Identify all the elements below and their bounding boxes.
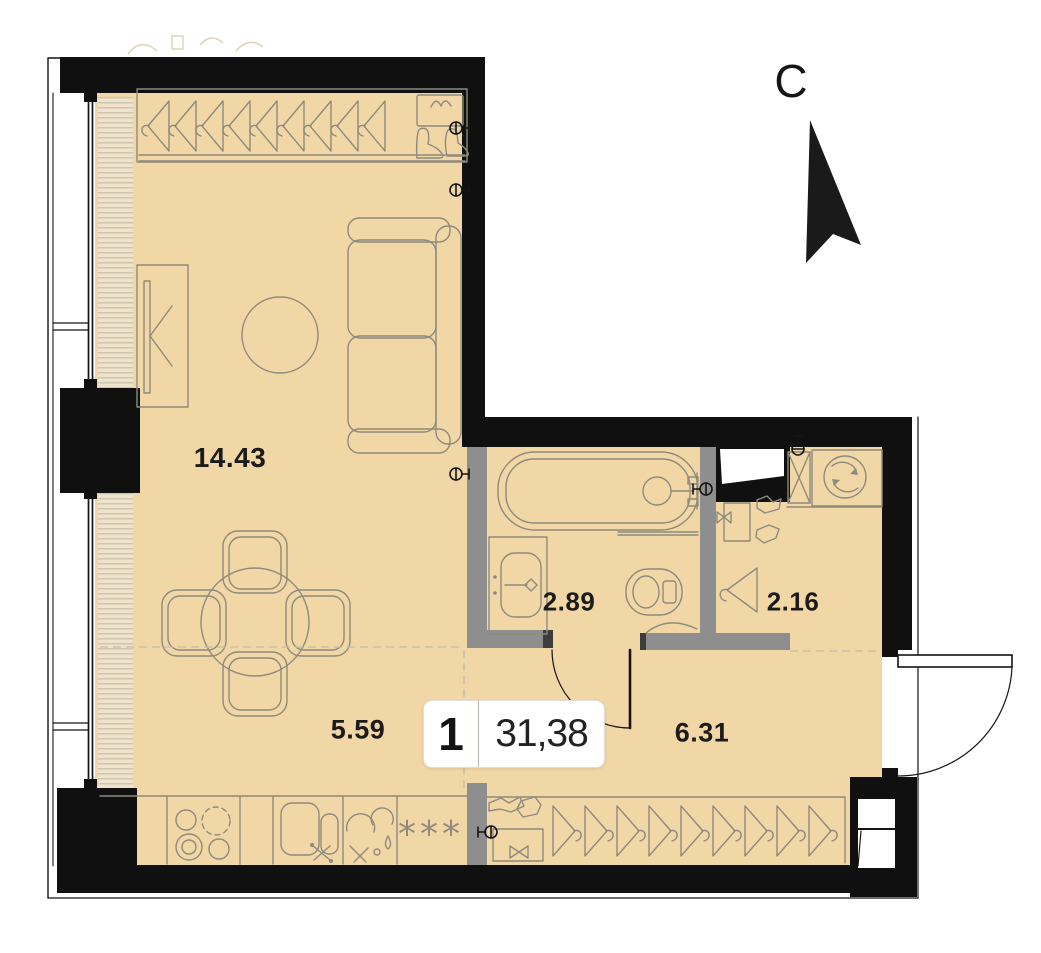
outlet-icon bbox=[450, 468, 469, 480]
area-label-storage: 2.16 bbox=[767, 587, 820, 618]
sink-vanity bbox=[489, 537, 547, 634]
unit-total-area: 31,38 bbox=[479, 701, 604, 767]
dining-table bbox=[162, 531, 350, 716]
shower-door-arc bbox=[646, 623, 697, 633]
closet-bottom bbox=[487, 797, 845, 863]
outlet-icon bbox=[693, 483, 712, 495]
compass-arrow-icon bbox=[806, 120, 861, 263]
area-label-kitchen: 5.59 bbox=[331, 715, 386, 746]
unit-number: 1 bbox=[424, 701, 479, 767]
outlet-icon bbox=[450, 184, 469, 196]
window-wall-left bbox=[48, 58, 97, 898]
kitchen-counter: *** bbox=[100, 796, 467, 864]
toilet bbox=[626, 569, 682, 615]
stove-icon bbox=[176, 807, 230, 860]
area-label-hallway: 6.31 bbox=[675, 718, 730, 749]
neighbour-fragment bbox=[128, 36, 263, 54]
dishes-icon bbox=[347, 808, 394, 862]
washing-machine bbox=[787, 450, 882, 507]
outlet-icon bbox=[478, 826, 497, 838]
wall-niche bbox=[720, 449, 895, 868]
storage-shelf-clothes bbox=[717, 496, 781, 543]
sofa bbox=[348, 218, 461, 453]
wardrobe-top bbox=[137, 89, 468, 162]
tv-stand bbox=[137, 265, 188, 407]
compass-north-label: C bbox=[774, 54, 807, 108]
bathtub bbox=[498, 452, 698, 535]
entrance-door bbox=[898, 655, 1012, 776]
freezer-symbol: *** bbox=[398, 814, 464, 855]
area-label-living: 14.43 bbox=[194, 442, 267, 474]
hanger-icon bbox=[720, 568, 757, 612]
outlet-icon bbox=[450, 122, 469, 134]
kitchen-sink-icon bbox=[281, 803, 338, 863]
unit-area-badge: 1 31,38 bbox=[423, 700, 605, 768]
area-label-bathroom: 2.89 bbox=[543, 587, 596, 618]
vent-shaft bbox=[788, 452, 810, 503]
floor-plan: *** bbox=[0, 0, 1041, 953]
round-rug bbox=[242, 297, 318, 373]
